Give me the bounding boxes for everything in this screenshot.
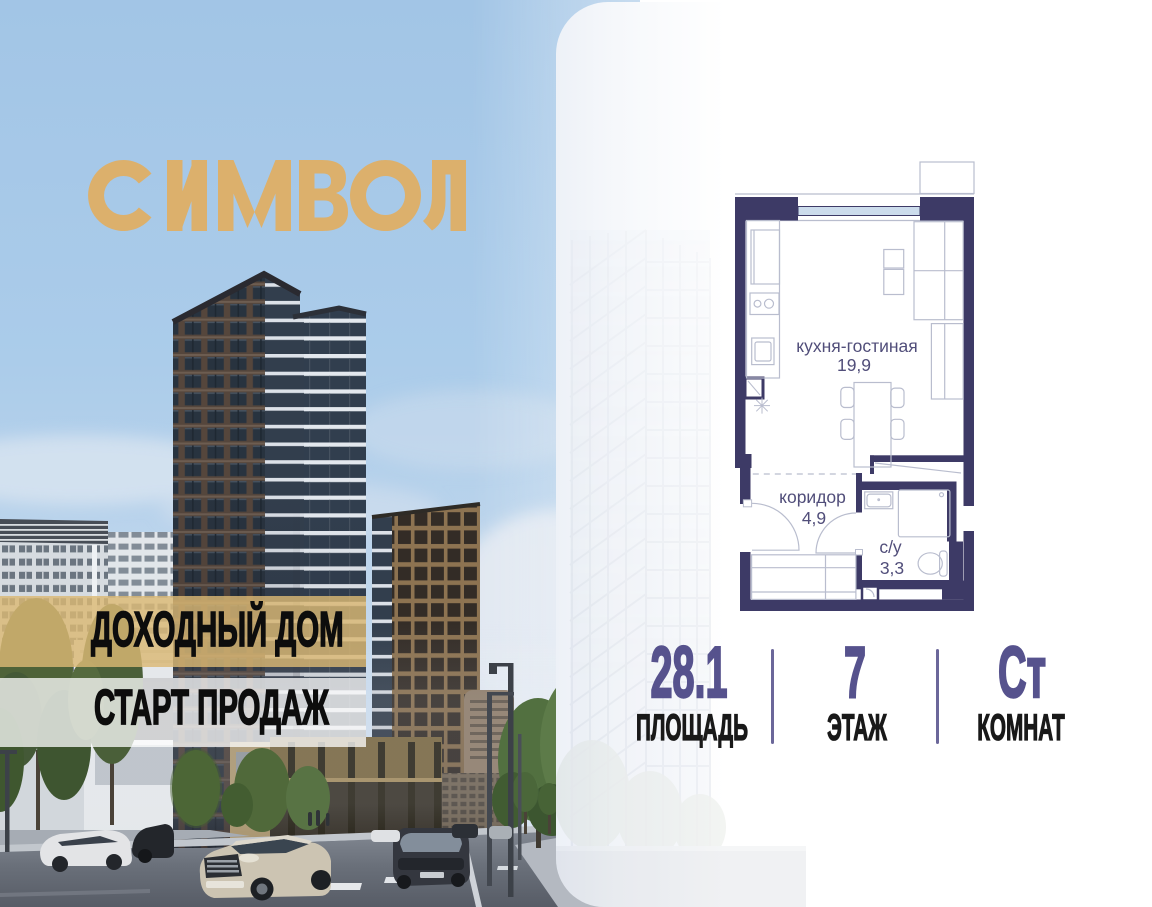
svg-text:с/у: с/у xyxy=(879,537,902,557)
svg-text:коридор: коридор xyxy=(779,487,846,507)
svg-text:19,9: 19,9 xyxy=(837,355,871,375)
svg-text:4,9: 4,9 xyxy=(802,508,826,528)
svg-text:кухня-гостиная: кухня-гостиная xyxy=(796,336,917,356)
svg-text:3,3: 3,3 xyxy=(880,558,904,578)
